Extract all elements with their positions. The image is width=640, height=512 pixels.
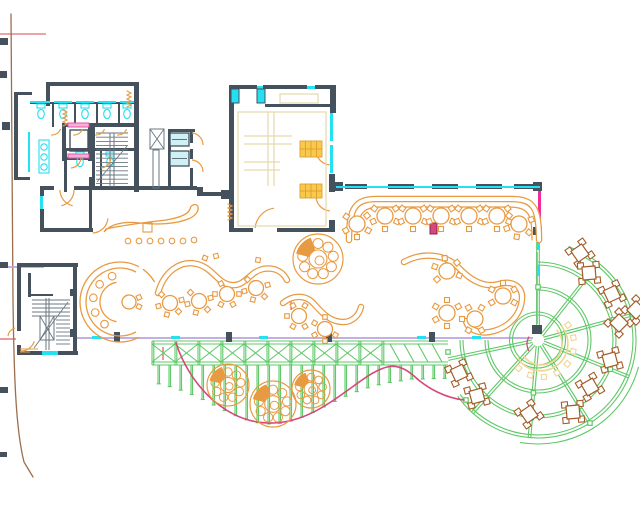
toilet-tank <box>103 104 111 108</box>
dining-table-group <box>242 276 271 302</box>
dining-chair <box>164 312 170 318</box>
dining-table-group <box>460 304 485 333</box>
dining-chair <box>460 317 465 322</box>
rosette-dot <box>281 407 290 416</box>
dining-chair <box>370 218 377 225</box>
dining-chair <box>399 205 406 212</box>
dining-table-group <box>370 205 400 231</box>
dining-chair <box>432 316 439 323</box>
dining-chair <box>427 205 434 212</box>
wall <box>0 452 7 457</box>
sink <box>41 154 47 160</box>
wall <box>226 332 232 342</box>
door-swing-arc <box>95 129 104 135</box>
toilet-bowl <box>104 109 111 118</box>
deck-table-group <box>514 399 544 429</box>
wall <box>0 262 8 268</box>
dining-chair <box>202 255 208 261</box>
rosette-core <box>315 256 324 265</box>
cad-viewport <box>0 0 640 512</box>
door-swing-arc <box>60 190 73 206</box>
wall <box>330 85 336 113</box>
rosette-dot <box>323 242 333 252</box>
deck-table <box>581 378 599 396</box>
dining-table <box>122 295 136 309</box>
dining-table <box>377 208 393 224</box>
bar-stool <box>169 238 175 244</box>
toilet-bowl <box>82 109 89 118</box>
reception-bench <box>104 205 198 232</box>
door-swing-arc <box>192 160 203 172</box>
dining-table-group <box>185 289 214 315</box>
dining-table-group <box>432 298 461 329</box>
deck-joint <box>531 391 535 395</box>
door-swing-arc <box>117 129 126 135</box>
dining-table-group <box>454 205 484 231</box>
window <box>28 132 30 172</box>
dining-chair <box>455 303 462 310</box>
wall <box>229 228 253 232</box>
wall <box>40 228 93 232</box>
dining-table-group <box>156 291 185 317</box>
stair-break-line <box>34 302 68 348</box>
kitchen-counter-outline <box>238 112 326 226</box>
truss-strut <box>432 344 442 362</box>
dining-chair <box>448 205 455 212</box>
dining-table <box>163 296 178 311</box>
dining-chair <box>483 205 490 212</box>
dining-chair <box>193 310 199 316</box>
floor-plan-canvas[interactable] <box>0 0 640 512</box>
rosette-ring <box>293 234 343 284</box>
dining-chair <box>495 227 500 232</box>
dining-chair <box>478 304 485 311</box>
dining-chair <box>434 276 441 283</box>
dining-chair <box>255 257 260 262</box>
elevator-door <box>68 154 89 158</box>
stool <box>108 272 116 280</box>
window <box>98 101 116 103</box>
kitchen-equipment-cell <box>317 191 323 198</box>
rosette-dot <box>326 262 336 272</box>
dining-chair <box>285 314 290 319</box>
dining-chair <box>392 205 399 212</box>
wall <box>277 228 335 232</box>
wall <box>265 104 331 107</box>
duct <box>153 150 159 188</box>
window <box>330 113 333 141</box>
kitchen-equipment-cell <box>311 184 317 191</box>
dining-chair <box>467 227 472 232</box>
dining-chair <box>455 205 462 212</box>
truss-strut <box>390 344 400 362</box>
wall <box>89 177 92 232</box>
dining-chair <box>363 212 370 219</box>
wall <box>46 82 139 86</box>
dining-chair <box>175 308 181 314</box>
dining-chair <box>261 293 267 299</box>
dining-chair <box>439 227 444 232</box>
wall <box>134 82 139 192</box>
glazed-pilaster <box>257 89 265 103</box>
dining-chair <box>290 323 296 329</box>
toilet-tank <box>59 104 67 108</box>
rosette-dot <box>300 262 310 272</box>
rosette-core <box>270 401 278 409</box>
kitchen-equipment-cell <box>311 149 317 157</box>
dining-table <box>220 287 235 302</box>
wall <box>114 332 120 342</box>
dining-chair <box>476 205 483 212</box>
dining-chair <box>432 263 438 269</box>
rosette-dot <box>315 376 323 384</box>
toilet-bowl <box>124 109 131 118</box>
deck-table <box>602 352 618 368</box>
dining-chair <box>213 292 218 297</box>
dining-chair <box>371 205 378 212</box>
truss-strut <box>418 344 428 362</box>
curved-banquette-arc <box>100 282 117 321</box>
bar-stool <box>125 238 131 244</box>
dining-table <box>349 216 365 232</box>
deck-joint <box>536 285 540 289</box>
dining-chair <box>504 205 511 212</box>
window <box>259 336 268 339</box>
kitchen-equipment-cell <box>317 149 323 157</box>
wall <box>0 38 8 45</box>
dining-table <box>489 208 505 224</box>
wall <box>92 127 95 188</box>
wall <box>28 273 31 297</box>
deck-table-group <box>445 359 474 388</box>
dining-table <box>439 263 455 279</box>
kitchen-equipment-cell <box>300 141 306 149</box>
rosette-wedge <box>295 373 309 387</box>
dining-table <box>192 294 207 309</box>
rosette-dot <box>273 413 282 422</box>
window <box>40 196 43 209</box>
dining-chair <box>355 235 360 240</box>
dining-chair <box>323 339 328 344</box>
dining-chair <box>204 306 210 312</box>
dining-chair <box>213 253 219 259</box>
deck-spoke <box>473 345 535 413</box>
dining-chair <box>465 304 472 311</box>
dining-chair <box>365 227 372 234</box>
wall <box>52 104 54 127</box>
rosette-dot <box>308 269 318 279</box>
truss-strut <box>404 344 414 362</box>
stool <box>91 309 99 317</box>
dining-chair <box>302 303 308 309</box>
kitchen-equipment-cell <box>300 149 306 157</box>
dining-chair <box>506 212 513 219</box>
rosette-dot <box>328 251 338 261</box>
property-line <box>11 14 33 477</box>
rosette-dot <box>213 387 221 395</box>
window <box>336 186 540 188</box>
deck-table <box>566 405 580 419</box>
stool <box>90 294 98 302</box>
window <box>472 336 481 339</box>
kitchen-equipment-cell <box>300 191 306 198</box>
service-box <box>430 223 437 234</box>
kitchen-equipment-cell <box>306 191 312 198</box>
kitchen-equipment-cell <box>306 141 312 149</box>
dining-chair <box>312 320 318 326</box>
dining-chair <box>511 299 518 306</box>
wall <box>28 294 53 296</box>
deck-table <box>469 388 485 404</box>
wall <box>40 186 44 196</box>
toilet-tank <box>37 104 45 108</box>
bar-stool <box>147 238 153 244</box>
deck-table-group <box>598 280 627 309</box>
dining-chair <box>156 303 162 309</box>
curved-banquette-arc <box>143 269 155 282</box>
door-swing-arc <box>51 129 60 135</box>
dining-table-group <box>398 205 428 231</box>
rosette-wedge <box>253 385 269 402</box>
dining-chair <box>302 323 308 329</box>
window <box>76 101 94 103</box>
deck-joint <box>608 367 612 371</box>
decorative-rosette <box>293 234 343 284</box>
bar-stool <box>158 238 164 244</box>
deck-stool <box>570 335 576 341</box>
rosette-dot <box>303 396 311 404</box>
dining-chair <box>218 301 224 307</box>
window <box>171 336 180 339</box>
wall <box>73 263 77 355</box>
wall <box>0 387 8 393</box>
dining-chair <box>432 303 439 310</box>
dining-chair <box>242 288 248 294</box>
stool <box>96 280 104 288</box>
wall <box>190 149 193 159</box>
kitchen-equipment-cell <box>306 184 312 191</box>
dining-table <box>439 305 455 321</box>
wall <box>70 329 77 337</box>
door-coil-symbol <box>127 91 131 107</box>
dining-chair <box>265 282 271 288</box>
dining-table <box>467 311 483 327</box>
dining-chair <box>504 225 510 231</box>
dining-table <box>249 281 264 296</box>
door-swing-arc <box>21 341 35 351</box>
dining-chair <box>136 304 142 310</box>
dining-chair <box>445 324 450 329</box>
sink <box>41 144 47 150</box>
bar-stool <box>191 237 197 243</box>
kitchen-equipment-cell <box>317 141 323 149</box>
dining-table <box>405 208 421 224</box>
window <box>307 86 315 89</box>
dining-table <box>433 208 449 224</box>
dining-chair <box>501 281 506 286</box>
window <box>54 101 72 103</box>
elevator-door <box>68 123 89 127</box>
window <box>417 336 426 339</box>
dining-table <box>511 216 527 232</box>
window <box>330 145 333 173</box>
wall <box>14 177 30 180</box>
kitchen-equipment-cell <box>300 184 306 191</box>
dining-chair <box>230 301 236 307</box>
wall <box>17 263 78 267</box>
deck-stool <box>527 372 533 378</box>
dining-chair <box>187 289 193 295</box>
toilet-bowl <box>38 109 45 118</box>
deck-table <box>520 405 538 423</box>
door-swing-arc <box>255 208 274 228</box>
dining-chair <box>456 272 462 278</box>
deck-table-group <box>575 372 604 401</box>
dining-chair <box>411 227 416 232</box>
dining-table-group <box>285 303 308 330</box>
wall <box>100 150 102 190</box>
rosette-wedge <box>297 238 315 256</box>
wall <box>14 92 18 180</box>
sink <box>41 164 47 170</box>
dining-table <box>461 208 477 224</box>
window <box>42 351 58 355</box>
deck-joint <box>588 421 592 425</box>
deck-table <box>571 244 589 262</box>
dining-chair <box>514 234 520 240</box>
wall <box>190 168 193 190</box>
dining-table <box>292 309 307 324</box>
rosette-dot <box>237 379 245 387</box>
kitchen-equipment-cell <box>311 191 317 198</box>
dining-chair <box>383 227 388 232</box>
door-swing-arc <box>316 197 330 211</box>
bar-stool <box>180 238 186 244</box>
rosette-wedge <box>210 368 225 383</box>
rosette-dot <box>313 239 323 249</box>
glazed-pilaster <box>231 89 239 103</box>
wall <box>2 122 10 130</box>
dining-chair <box>237 292 242 297</box>
dining-chair <box>488 299 495 306</box>
deck-table <box>582 266 596 280</box>
wall <box>221 190 230 199</box>
window <box>30 101 50 103</box>
dining-chair <box>420 205 427 212</box>
dining-chair <box>136 294 142 300</box>
kitchen-equipment-cell <box>311 141 317 149</box>
wall <box>58 351 78 355</box>
kitchen-equipment-cell <box>317 184 323 191</box>
deck-stool <box>564 360 571 367</box>
wall <box>429 332 435 342</box>
door-swing-arc <box>192 133 203 145</box>
wall <box>70 289 77 296</box>
kitchen-layer <box>238 94 326 226</box>
deck-joint <box>446 350 450 354</box>
window <box>537 265 540 276</box>
kitchen-equipment-cell <box>306 149 312 157</box>
wall <box>190 129 193 143</box>
dining-chair <box>185 301 191 307</box>
kitchen-counter <box>280 94 318 103</box>
wall <box>62 123 66 161</box>
rosette-core <box>225 382 233 390</box>
wall <box>197 187 203 196</box>
dining-chair <box>442 255 448 261</box>
dining-table <box>318 322 333 337</box>
dining-table <box>495 288 511 304</box>
wall <box>229 85 257 89</box>
dining-chair <box>250 297 256 303</box>
stool <box>101 320 109 328</box>
wall <box>0 71 7 78</box>
wall <box>532 325 542 334</box>
deck-stool <box>565 322 572 329</box>
wall <box>263 85 307 89</box>
dining-chair <box>445 298 450 303</box>
dining-table-group <box>122 294 142 309</box>
dining-chair <box>528 216 534 222</box>
deck-stool <box>541 374 546 379</box>
bar-stool <box>136 238 142 244</box>
dining-chair <box>179 297 185 303</box>
wall <box>74 186 136 190</box>
deck-stool <box>570 348 576 354</box>
wall <box>17 263 21 331</box>
dining-chair <box>323 315 328 320</box>
rosette-dot <box>318 269 328 279</box>
toilet-tank <box>81 104 89 108</box>
deck-stool <box>554 369 561 376</box>
rosette-dot <box>317 391 325 399</box>
